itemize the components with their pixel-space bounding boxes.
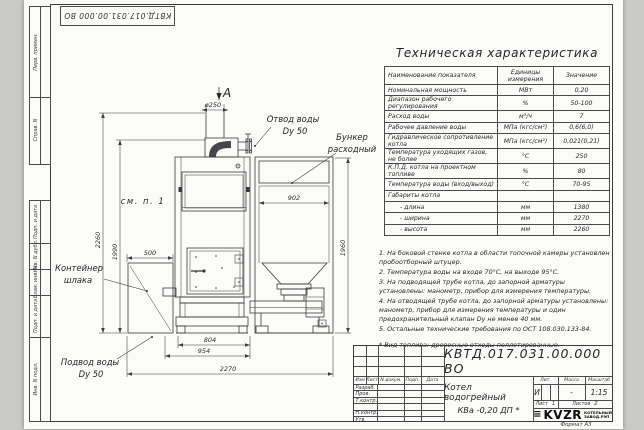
label-slag-container: Контейнер [55, 263, 103, 273]
vzam-inv-label: Взам. инв. N [33, 266, 39, 299]
cell-podp-data-1: Подп. и дата [30, 201, 50, 244]
label-water-inlet: Подвод воды [61, 357, 120, 367]
dim-804: 804 [204, 336, 216, 344]
table-cell: Температура воды (вход/выход) [385, 179, 498, 190]
sheets-value: 2 [594, 401, 598, 407]
product-name: Котел водогрейный КВа -0,20 ДП * [444, 376, 533, 422]
manufacturer-logo: ≡ KVZR КОТЕЛЬНЫЙ ЗАВОД.РЭП [533, 408, 612, 422]
table-cell: 50-100 [554, 96, 610, 111]
table-cell: 0,6(6,0) [554, 122, 610, 133]
sign-row-nkontr: Н.контр. [356, 410, 378, 416]
product-name-line1: Котел водогрейный [444, 383, 533, 403]
table-cell: м³/ч [498, 111, 554, 122]
table-cell: МПа (кгс/см²) [498, 134, 554, 149]
rev-header-doc: N докум. [380, 378, 401, 383]
table-row: Температура уходящих газов, не более°С25… [385, 149, 610, 164]
sheet-value: 1 [552, 401, 556, 407]
mass-value: - [570, 388, 573, 397]
table-cell: 0,021(0,21) [554, 134, 610, 149]
table-cell: мм [498, 201, 554, 212]
note-4: 4. На отводящей трубе котла, до запорной… [379, 297, 612, 324]
scale-label: Масштаб [588, 378, 610, 383]
table-cell: 2260 [554, 224, 610, 235]
col-header-value: Значение [554, 67, 610, 85]
table-cell: % [498, 96, 554, 111]
inv-podl-label: Инв. N подл. [33, 362, 39, 395]
boiler-body [175, 157, 250, 333]
logo-subtitle: КОТЕЛЬНЫЙ ЗАВОД.РЭП [584, 411, 612, 419]
dim-chimney: ø250 [204, 101, 221, 109]
dim-2270: 2270 [220, 365, 237, 373]
table-row: Номинальная мощностьМВт0,20 [385, 85, 610, 96]
sheet-cell: Лист 1 [533, 400, 558, 408]
table-row: Температура воды (вход/выход)°С70-95 [385, 179, 610, 190]
grid-line [421, 346, 422, 422]
table-cell: 70-95 [554, 179, 610, 190]
note-2: 2. Температура воды на входе 70°С, на вы… [379, 268, 612, 277]
heat-exchanger-door [182, 172, 246, 211]
tech-table: Наименование показателя Единицы измерени… [384, 66, 610, 236]
table-header-row: Наименование показателя Единицы измерени… [385, 67, 610, 85]
table-row: Расход водым³/ч7 [385, 111, 610, 122]
table-row: Диапазон рабочего регулирования%50-100 [385, 96, 610, 111]
gost-left-strip-bottom: Подп. и дата Инв. N дубл. Взам. инв. N П… [29, 200, 51, 422]
lit-label: Лит. [540, 378, 551, 383]
hopper-funnel [262, 263, 327, 284]
rev-header-list: Лист [366, 378, 378, 383]
label-water-inlet-dy: Dy 50 [79, 369, 104, 379]
document-number: КВТД.017.031.00.000 ВО [444, 346, 612, 376]
grid-line [585, 376, 586, 400]
table-row: - высотамм2260 [385, 224, 610, 235]
slag-container [128, 263, 176, 333]
logo-subtitle-line2: ЗАВОД.РЭП [584, 415, 612, 419]
format-label: Формат А3 [556, 422, 596, 428]
col-header-units: Единицы измерения [498, 67, 554, 85]
table-cell: 0,20 [554, 85, 610, 96]
table-cell: Номинальная мощность [385, 85, 498, 96]
cell-inv-podl: Инв. N подл. [30, 337, 50, 421]
boiler-assembly-drawing: А ø250 Отвод воды Dy 50 Бункер расходный… [52, 0, 378, 428]
table-cell: Расход воды [385, 111, 498, 122]
table-cell: мм [498, 224, 554, 235]
sheets-cell: Листов 2 [558, 400, 612, 408]
scale-value: 1:15 [591, 388, 608, 397]
col-header-name: Наименование показателя [385, 67, 498, 85]
table-row: К.П.Д. котла на проектном топливе%80 [385, 164, 610, 179]
lit-value: И [534, 388, 540, 397]
grid-line [533, 384, 612, 385]
table-cell: °С [498, 149, 554, 164]
table-row: - длинамм1380 [385, 201, 610, 212]
note-1: 1. На боковой стенке котла в области топ… [379, 249, 612, 267]
label-see-note-1: см. п. 1 [121, 196, 165, 206]
dim-2260: 2260 [94, 232, 102, 249]
grid-line [404, 346, 405, 422]
grid-line [550, 384, 551, 401]
table-cell: - длина [385, 201, 498, 212]
table-row: Рабочее давление водыМПа (кгс/см²)0,6(6,… [385, 122, 610, 133]
table-cell: Температура уходящих газов, не более [385, 149, 498, 164]
sign-row-tkontr: Т.контр. [356, 398, 378, 404]
mass-label: Масса [564, 378, 579, 383]
table-cell: Диапазон рабочего регулирования [385, 96, 498, 111]
drawing-sheet-photo: Перв. примен. Справ. N Подп. и дата Инв.… [0, 0, 644, 430]
product-name-line2: КВа -0,20 ДП * [457, 405, 519, 415]
table-cell [554, 190, 610, 201]
cell-podp-data-2: Подп. и дата [30, 295, 50, 338]
rev-header-data: Дата [427, 378, 439, 383]
chimney-and-outlet [205, 112, 252, 157]
table-cell: 250 [554, 149, 610, 164]
sign-row-prov: Пров. [356, 391, 371, 397]
table-cell: МПа (кгс/см²) [498, 122, 554, 133]
table-cell: - высота [385, 224, 498, 235]
label-hopper: Бункер [336, 132, 368, 142]
technical-notes: 1. На боковой стенке котла в области топ… [379, 249, 612, 351]
sheets-label: Листов [572, 402, 590, 407]
screw-feeder [250, 301, 322, 313]
sheet-label: Лист [536, 402, 548, 407]
table-cell: 2270 [554, 213, 610, 224]
view-a-label: А [222, 86, 231, 100]
table-cell: МВт [498, 85, 554, 96]
logo-mark-icon: ≡ [533, 410, 541, 420]
sign-row-utv: Утв. [356, 417, 367, 423]
ash-box [180, 303, 244, 317]
outlet-elbow [209, 141, 231, 157]
dim-1990: 1990 [111, 244, 119, 261]
dim-954: 954 [198, 347, 210, 355]
table-cell [498, 190, 554, 201]
rev-header-podp: Подп. [406, 378, 420, 383]
table-cell: К.П.Д. котла на проектном топливе [385, 164, 498, 179]
note-5: 5. Остальные технические требования по О… [379, 325, 612, 334]
cell-sprav-n: Справ. N [30, 97, 50, 163]
sign-row-razrab: Разраб. [356, 385, 376, 391]
door-bolts [195, 255, 235, 289]
table-cell: Рабочее давление воды [385, 122, 498, 133]
grid-line [354, 366, 444, 367]
cell-vzam-inv: Взам. инв. N [30, 269, 50, 296]
base-frame [176, 317, 248, 326]
gost-left-strip-top: Перв. примен. Справ. N [29, 6, 51, 165]
table-cell: °С [498, 179, 554, 190]
table-row: - ширинамм2270 [385, 213, 610, 224]
rev-header-izm: Изм [355, 378, 364, 383]
table-row: Габариты котла [385, 190, 610, 201]
label-slag-container-2: шлака [64, 275, 92, 285]
table-cell: - ширина [385, 213, 498, 224]
grid-line [354, 416, 444, 417]
table-cell: 1380 [554, 201, 610, 212]
title-block: Изм Лист N докум. Подп. Дата Разраб. Про… [353, 345, 612, 422]
grid-line [541, 384, 542, 401]
tech-table-title: Техническая характеристика [384, 46, 610, 60]
perv-primen-label: Перв. примен. [33, 33, 39, 71]
dim-1960: 1960 [339, 240, 347, 257]
slag-chute [163, 288, 176, 296]
cell-perv-primen: Перв. примен. [30, 7, 50, 98]
label-water-outlet-dy: Dy 50 [283, 126, 308, 136]
sprav-n-label: Справ. N [33, 119, 39, 142]
table-cell: 7 [554, 111, 610, 122]
podp-data-label: Подп. и дата [33, 205, 39, 239]
podp-data-label: Подп. и дата [33, 299, 39, 333]
dim-500: 500 [144, 249, 156, 257]
table-cell: мм [498, 213, 554, 224]
dim-902: 902 [288, 194, 300, 202]
table-row: Гидравлическое сопротивление котлаМПа (к… [385, 134, 610, 149]
grid-line [354, 356, 444, 357]
label-hopper-2: расходный [327, 144, 377, 154]
table-cell: 80 [554, 164, 610, 179]
table-cell: Габариты котла [385, 190, 498, 201]
label-water-outlet: Отвод воды [267, 114, 320, 124]
table-cell: Гидравлическое сопротивление котла [385, 134, 498, 149]
table-cell: % [498, 164, 554, 179]
note-3: 3. На подводящей трубе котла, до запорно… [379, 278, 612, 296]
logo-text: KVZR [544, 409, 583, 421]
